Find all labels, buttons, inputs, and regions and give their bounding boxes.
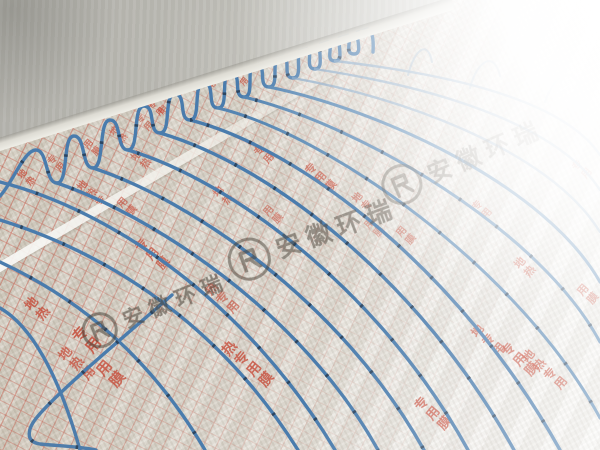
pipe-hairpin-far xyxy=(545,75,582,102)
watermark-logo-mark xyxy=(234,244,264,274)
watermark-logo-mark xyxy=(87,318,113,344)
pipe-run xyxy=(0,308,80,450)
pipe-hairpin-far xyxy=(470,61,500,88)
watermark-logo-mark xyxy=(387,169,416,198)
photo-underfloor-heating-installation: 专用用专用用专用专用地热专用用膜地热专用用地热专用专用膜地热用膜地热专用膜专用膜… xyxy=(0,0,600,450)
